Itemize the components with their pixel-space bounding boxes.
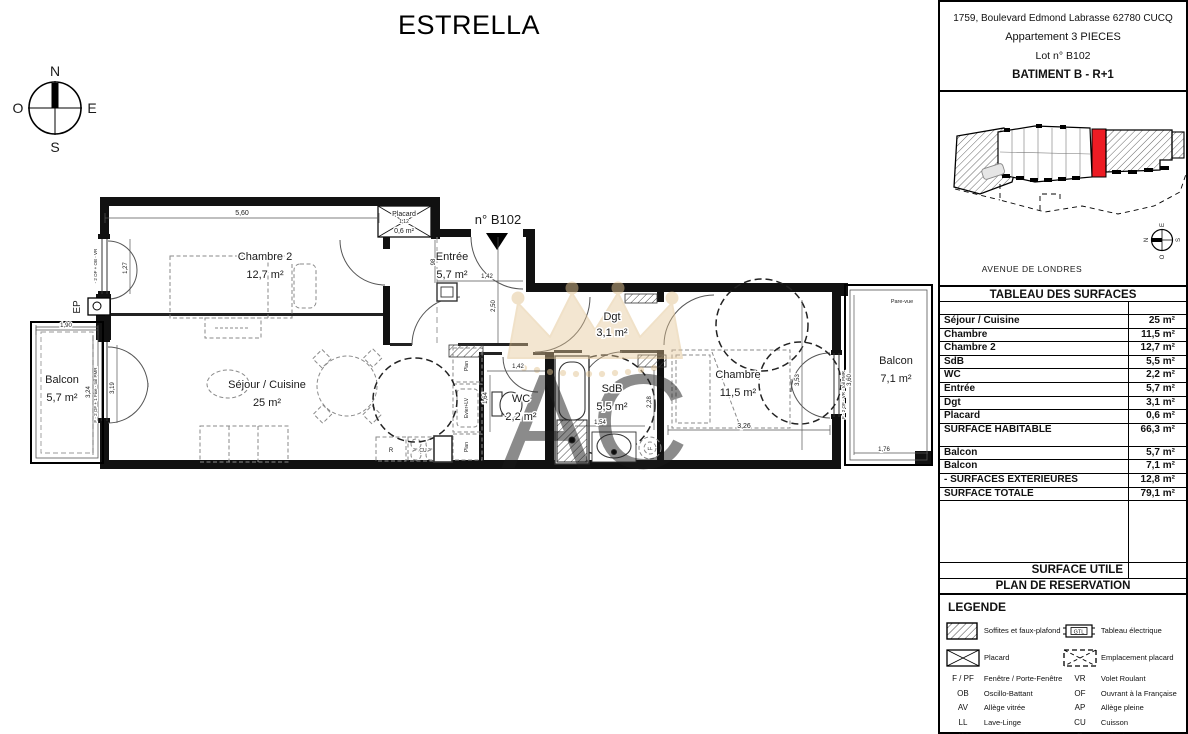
- surfaces-table: Séjour / Cuisine25 m² Chambre11,5 m² Cha…: [940, 302, 1186, 562]
- legend-abbr-row: OB Oscillo-Battant OF Ouvrant à la Franç…: [946, 686, 1180, 701]
- table-row-total: SURFACE TOTALE79,1 m²: [940, 487, 1186, 501]
- building-level: BATIMENT B - R+1: [940, 69, 1186, 81]
- room-balcon-left-area: 5,7 m²: [46, 392, 78, 404]
- plan-reservation-banner: PLAN DE RESERVATION: [940, 578, 1186, 595]
- dim-319: 3,19: [110, 382, 116, 394]
- abbr-label: Allège pleine: [1097, 703, 1180, 712]
- legend-abbr-row: LV Lave-Vaisselle R Réfrigérateur: [946, 730, 1180, 734]
- table-row: Entrée5,7 m²: [940, 382, 1186, 396]
- window-spec-balcony: F - 2 OF + 1 Fixe - toil PMR: [93, 367, 98, 423]
- row-value: 3,1 m²: [1128, 397, 1186, 410]
- row-value: 12,7 m²: [1128, 342, 1186, 355]
- row-value: 11,5 m²: [1128, 329, 1186, 342]
- legend-symbol-label: Placard: [980, 653, 1063, 662]
- floorplan-drawing: N S O E: [0, 0, 938, 734]
- placard-icon: [946, 649, 980, 667]
- abbr-code: CU: [1063, 718, 1097, 727]
- sink-label: Evier+LV: [464, 397, 470, 418]
- room-wc-area: 2,2 m²: [505, 411, 537, 423]
- row-label: Chambre 2: [940, 342, 1128, 355]
- legend-block: LEGENDE Soffites et faux-plafond GTL Tab…: [940, 595, 1186, 734]
- room-balcon-right-area: 7,1 m²: [880, 373, 912, 385]
- site-plan: N E S O AVENUE DE LONDRES: [940, 92, 1186, 285]
- lot-number: Lot n° B102: [940, 50, 1186, 62]
- legend-symbol-label: Tableau électrique: [1097, 626, 1180, 635]
- abbr-code: AV: [946, 703, 980, 712]
- room-sejour-name: Séjour / Cuisine: [228, 379, 306, 391]
- row-value: 66,3 m²: [1128, 424, 1186, 446]
- compass-n: N: [50, 63, 60, 79]
- surface-utile-label: SURFACE UTILE: [940, 563, 1128, 578]
- placard-location-icon: [1063, 649, 1097, 667]
- row-label: Balcon: [940, 460, 1128, 473]
- row-label: Entrée: [940, 383, 1128, 396]
- dimension-labels: 5,60 98 1,42 2,50 1,27 1,90 3,24 3,19 1,…: [60, 210, 890, 453]
- table-row: SdB5,5 m²: [940, 355, 1186, 369]
- row-value: 0,6 m²: [1128, 410, 1186, 423]
- abbr-code: OB: [946, 689, 980, 698]
- row-value: 5,7 m²: [1128, 447, 1186, 460]
- pare-vue-label: Pare-vue: [891, 299, 913, 305]
- ep-box: EP: [72, 298, 110, 315]
- room-chambre2-name: Chambre 2: [238, 251, 292, 263]
- legend-abbr-row: F / PF Fenêtre / Porte-Fenêtre VR Volet …: [946, 671, 1180, 686]
- table-row: Balcon7,1 m²: [940, 459, 1186, 473]
- room-placard-area: 0,6 m²: [394, 228, 415, 235]
- highlighted-unit: [1092, 129, 1106, 177]
- row-label: SURFACE TOTALE: [940, 488, 1128, 501]
- table-spacer-row: [940, 302, 1186, 314]
- apartment-type: Appartement 3 PIECES: [940, 31, 1186, 43]
- abbr-code: F / PF: [946, 674, 980, 683]
- surface-utile-row: SURFACE UTILE: [940, 562, 1186, 578]
- row-value: 2,2 m²: [1128, 369, 1186, 382]
- dim-127: 1,27: [123, 262, 129, 274]
- plan-sheet: ESTRELLA N S O E: [0, 0, 1188, 734]
- legend-abbr-row: LL Lave-Linge CU Cuisson: [946, 715, 1180, 730]
- dim-98: 98: [431, 258, 437, 265]
- site-compass: N E S O: [1144, 223, 1182, 259]
- surfaces-table-title: TABLEAU DES SURFACES: [940, 285, 1186, 302]
- row-label: - SURFACES EXTERIEURES: [940, 474, 1128, 487]
- dim-142a: 1,42: [481, 274, 493, 280]
- room-sdb-area: 5,5 m²: [596, 401, 628, 413]
- legend-symbol-label: Emplacement placard: [1097, 653, 1180, 662]
- legend-title: LEGENDE: [948, 600, 1180, 614]
- dim-250: 2,50: [491, 300, 497, 312]
- room-entree-name: Entrée: [436, 251, 468, 263]
- entry-door-marker: [486, 233, 508, 250]
- row-value: 7,1 m²: [1128, 460, 1186, 473]
- abbr-code: OF: [1063, 689, 1097, 698]
- abbr-label: Allège vitrée: [980, 703, 1063, 712]
- row-value: 5,5 m²: [1128, 356, 1186, 369]
- table-row: WC2,2 m²: [940, 368, 1186, 382]
- window-spec-left: - 2 OF + OB - VR: [93, 248, 98, 283]
- table-row: Séjour / Cuisine25 m²: [940, 314, 1186, 328]
- site-compass-e: E: [1160, 223, 1166, 227]
- row-label: Chambre: [940, 329, 1128, 342]
- abbr-code: AP: [1063, 703, 1097, 712]
- room-chambre-name: Chambre: [715, 369, 760, 381]
- dim-324: 3,24: [86, 386, 92, 398]
- gtl-icon-text: GTL: [1074, 629, 1085, 635]
- room-balcon-left-name: Balcon: [45, 374, 79, 386]
- abbr-label: Volet Roulant: [1097, 674, 1180, 683]
- table-row: Balcon5,7 m²: [940, 446, 1186, 460]
- watermark: AC: [501, 282, 689, 497]
- dim-326: 3,26: [737, 423, 751, 430]
- title-block: 1759, Boulevard Edmond Labrasse 62780 CU…: [940, 2, 1186, 92]
- row-label: Séjour / Cuisine: [940, 315, 1128, 328]
- room-balcon-right-name: Balcon: [879, 355, 913, 367]
- row-value: 25 m²: [1128, 315, 1186, 328]
- row-label: Dgt: [940, 397, 1128, 410]
- room-entree-area: 5,7 m²: [436, 269, 468, 281]
- row-label: WC: [940, 369, 1128, 382]
- site-compass-s: S: [1176, 238, 1182, 242]
- room-chambre-area: 11,5 m²: [720, 387, 757, 399]
- site-compass-needle: [1152, 238, 1163, 242]
- ep-label: EP: [72, 300, 83, 314]
- abbr-label: Ouvrant à la Française: [1097, 689, 1180, 698]
- cooktop-label: CU: [419, 448, 427, 454]
- table-row: - SURFACES EXTERIEURES12,8 m²: [940, 473, 1186, 487]
- dim-360: 3,60: [847, 374, 853, 386]
- room-placard-name: Placard: [392, 211, 416, 218]
- fridge-label: R: [389, 448, 394, 454]
- abbr-code: LL: [946, 718, 980, 727]
- abbr-label: Lave-Linge: [980, 718, 1063, 727]
- site-buildings: [954, 124, 1186, 214]
- dim-164: 1,64: [483, 392, 489, 404]
- table-row: Chambre 212,7 m²: [940, 341, 1186, 355]
- dim-353: 3,53: [795, 374, 801, 386]
- legend-symbol-row: Placard Emplacement placard: [946, 644, 1180, 671]
- table-row: Chambre11,5 m²: [940, 328, 1186, 342]
- dim-142b: 1,42: [512, 364, 524, 370]
- abbr-label: Oscillo-Battant: [980, 689, 1063, 698]
- dim-228: 2,28: [647, 396, 653, 408]
- counter-label-1: Plan: [464, 361, 470, 371]
- north-needle: [52, 83, 59, 108]
- compass-rose: N S O E: [13, 63, 97, 155]
- room-wc-name: WC: [512, 393, 530, 405]
- abbr-label: Cuisson: [1097, 718, 1180, 727]
- compass-o: O: [13, 100, 24, 116]
- dim-176: 1,76: [878, 447, 890, 453]
- info-panel: 1759, Boulevard Edmond Labrasse 62780 CU…: [938, 0, 1188, 734]
- abbr-label: Fenêtre / Porte-Fenêtre: [980, 674, 1063, 683]
- legend-abbr-row: AV Allège vitrée AP Allège pleine: [946, 700, 1180, 715]
- dim-placard: 1,12: [399, 219, 409, 225]
- soffite-hatch-icon: [946, 622, 980, 640]
- row-value: 5,7 m²: [1128, 383, 1186, 396]
- table-row: Dgt3,1 m²: [940, 396, 1186, 410]
- address-line: 1759, Boulevard Edmond Labrasse 62780 CU…: [940, 13, 1186, 24]
- site-compass-n: N: [1144, 238, 1150, 242]
- row-value: 79,1 m²: [1128, 488, 1186, 501]
- site-compass-o: O: [1160, 254, 1166, 259]
- legend-symbol-label: Soffites et faux-plafond: [980, 626, 1063, 635]
- room-dgt-name: Dgt: [603, 311, 620, 323]
- legend-symbol-row: Soffites et faux-plafond GTL Tableau éle…: [946, 617, 1180, 644]
- table-empty-block: [940, 500, 1186, 562]
- surface-utile-value: [1128, 563, 1186, 578]
- washer-label: LL: [647, 446, 653, 451]
- room-sejour-area: 25 m²: [253, 397, 281, 409]
- dim-560: 5,60: [235, 210, 249, 217]
- table-row-habitable: SURFACE HABITABLE66,3 m²: [940, 423, 1186, 446]
- row-label: Placard: [940, 410, 1128, 423]
- room-chambre2-area: 12,7 m²: [246, 269, 284, 281]
- row-label: SURFACE HABITABLE: [940, 424, 1128, 446]
- site-plan-drawing: N E S O AVENUE DE LONDRES: [940, 92, 1186, 285]
- unit-number-label: n° B102: [475, 212, 521, 227]
- window-spec-right: F - 2 OF - VR - toil PMR: [841, 370, 846, 419]
- abbr-code: VR: [1063, 674, 1097, 683]
- street-label: AVENUE DE LONDRES: [982, 264, 1082, 274]
- dim-154: 1,54: [594, 420, 606, 426]
- counter-label-2: Plan: [464, 442, 470, 452]
- table-row: Placard0,6 m²: [940, 409, 1186, 423]
- row-label: Balcon: [940, 447, 1128, 460]
- compass-s: S: [50, 139, 59, 155]
- room-dgt-area: 3,1 m²: [596, 327, 628, 339]
- compass-e: E: [87, 100, 96, 116]
- row-value: 12,8 m²: [1128, 474, 1186, 487]
- dim-190: 1,90: [60, 323, 72, 329]
- row-label: SdB: [940, 356, 1128, 369]
- room-sdb-name: SdB: [602, 383, 623, 395]
- electrical-board-icon: GTL: [1063, 622, 1097, 640]
